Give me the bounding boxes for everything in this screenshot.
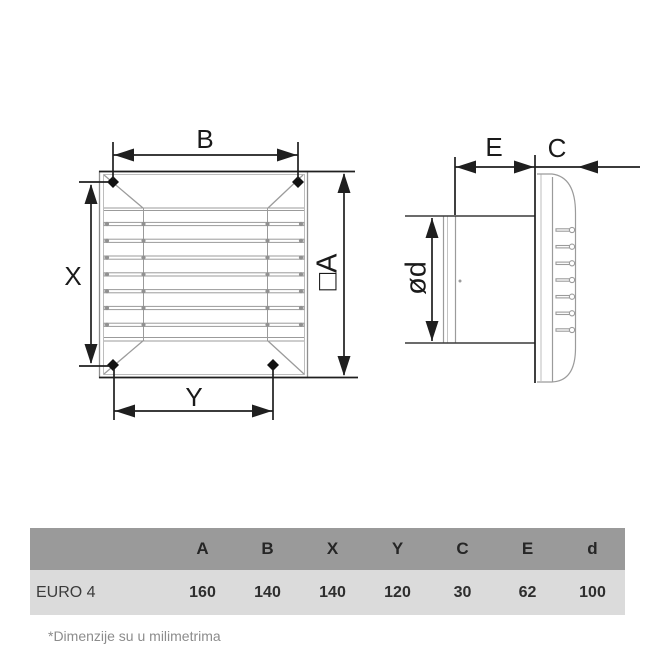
- front-frame: [100, 172, 308, 378]
- dim-label-e: E: [485, 134, 502, 160]
- dim-label-x: X: [64, 263, 81, 289]
- units-footnote: *Dimenzije su u milimetrima: [48, 628, 221, 644]
- table-cell-c: 30: [430, 570, 495, 615]
- table-cell-d: 100: [560, 570, 625, 615]
- dim-label-c: C: [548, 135, 567, 161]
- page: B X Y □A E C ød A B X Y C E d EURO 4 160…: [0, 0, 668, 668]
- table-header-b: B: [235, 528, 300, 570]
- table-cell-b: 140: [235, 570, 300, 615]
- table-header-y: Y: [365, 528, 430, 570]
- table-header-e: E: [495, 528, 560, 570]
- table-cell-x: 140: [300, 570, 365, 615]
- side-slats: [556, 227, 575, 332]
- table-header-model: [30, 528, 170, 570]
- table-header-row: A B X Y C E d: [30, 528, 625, 570]
- front-louvers: [104, 208, 304, 341]
- dim-label-b: B: [196, 126, 213, 152]
- table-header-d: d: [560, 528, 625, 570]
- table-cell-model: EURO 4: [30, 570, 170, 615]
- dim-label-y: Y: [185, 384, 202, 410]
- table-row: EURO 4 160 140 140 120 30 62 100: [30, 570, 625, 615]
- louver-slats: [104, 222, 304, 326]
- dim-e-c: [455, 157, 640, 215]
- dimensions-table: A B X Y C E d EURO 4 160 140 140 120 30 …: [30, 528, 625, 615]
- table-header-a: A: [170, 528, 235, 570]
- table-header-c: C: [430, 528, 495, 570]
- dim-label-a: □A: [314, 254, 343, 291]
- table-cell-a: 160: [170, 570, 235, 615]
- side-body: [444, 216, 462, 343]
- front-corner-marks: [107, 176, 304, 371]
- table-cell-y: 120: [365, 570, 430, 615]
- table-header-x: X: [300, 528, 365, 570]
- table-cell-e: 62: [495, 570, 560, 615]
- louver-knobs: [105, 222, 303, 327]
- dim-label-d: ød: [403, 261, 432, 295]
- side-view: [405, 155, 640, 383]
